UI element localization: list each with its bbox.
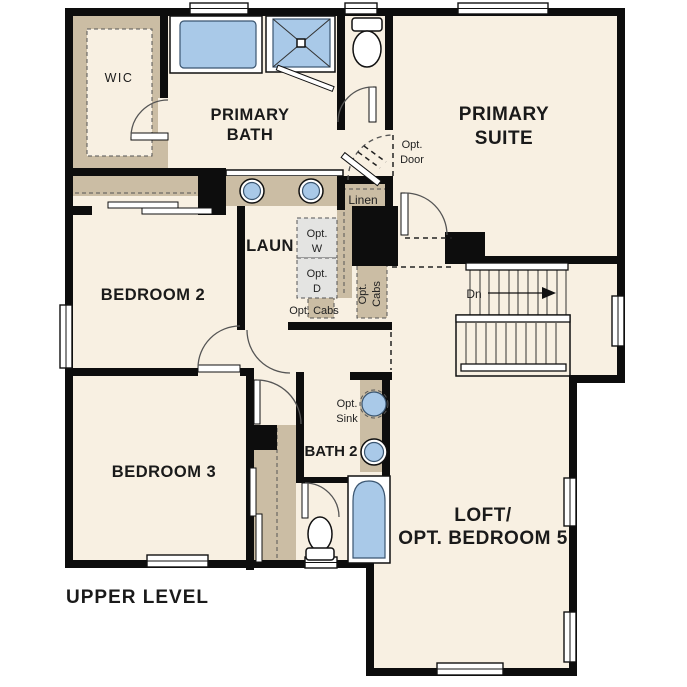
- label-opt-cabs: Opt. Cabs: [289, 305, 339, 317]
- bathtub-fixture: [348, 476, 390, 563]
- room-label-wic: WIC: [105, 71, 134, 85]
- vanity-sink: [299, 179, 323, 203]
- sink-fixture: [361, 439, 387, 465]
- closet-slider: [108, 202, 178, 208]
- closet-slider: [256, 514, 262, 562]
- label-opt-sink-2: Sink: [336, 413, 358, 425]
- closet-slider: [250, 468, 256, 516]
- bedroom2-door: [198, 365, 240, 372]
- label-opt-dryer-2: D: [313, 283, 321, 295]
- bedroom3-door: [254, 380, 260, 424]
- label-stairs-down: Dn: [466, 287, 481, 301]
- label-opt-washer: Opt.: [307, 228, 328, 240]
- bath2-door: [302, 483, 308, 518]
- room-label-bedroom2: BEDROOM 2: [101, 286, 205, 304]
- room-label-loft-2: OPT. BEDROOM 5: [398, 528, 568, 549]
- window: [564, 612, 576, 662]
- vanity-edge: [226, 170, 343, 176]
- window: [60, 305, 72, 368]
- room-label-bedroom3: BEDROOM 3: [112, 463, 216, 481]
- window: [458, 3, 548, 14]
- room-label-laundry: LAUN: [246, 237, 294, 255]
- bathtub-fixture: [170, 16, 262, 73]
- window: [437, 663, 503, 675]
- room-label-primary-suite-2: SUITE: [475, 128, 533, 149]
- window: [612, 296, 624, 346]
- label-linen: Linen: [348, 193, 377, 207]
- vanity-sink: [240, 179, 264, 203]
- label-opt-dryer: Opt.: [307, 268, 328, 280]
- water-closet-door: [369, 87, 376, 122]
- closet-slider: [142, 208, 212, 214]
- room-label-primary-bath: PRIMARY: [211, 106, 290, 124]
- label-opt-washer-2: W: [312, 243, 323, 255]
- window: [345, 3, 377, 14]
- room-label-bath2: BATH 2: [304, 443, 357, 460]
- label-opt-cabs-vertical: Opt.: [357, 284, 369, 305]
- floor-plan: WIC PRIMARY BATH PRIMARY SUITE Opt. Door…: [0, 0, 687, 687]
- plan-title: UPPER LEVEL: [66, 587, 209, 608]
- wic-door: [131, 133, 168, 140]
- room-label-primary-bath-2: BATH: [227, 126, 274, 144]
- window: [147, 555, 208, 567]
- label-opt-door-2: Door: [400, 154, 424, 166]
- label-opt-cabs-vertical-2: Cabs: [371, 281, 383, 307]
- toilet-fixture: [352, 18, 382, 67]
- label-opt-sink: Opt.: [337, 398, 358, 410]
- toilet-fixture: [306, 517, 334, 560]
- room-label-primary-suite: PRIMARY: [459, 104, 549, 125]
- room-label-loft: LOFT/: [454, 505, 512, 526]
- label-opt-door: Opt.: [402, 139, 423, 151]
- window: [190, 3, 248, 14]
- primary-suite-door: [401, 193, 408, 235]
- window: [564, 478, 576, 526]
